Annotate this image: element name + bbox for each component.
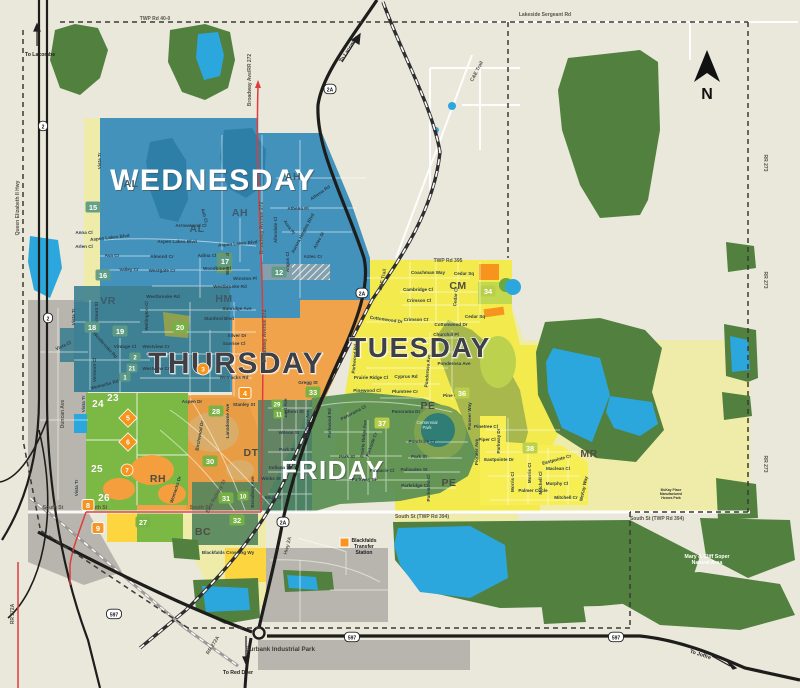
badge-number: 28 [212,407,220,416]
street-label: Stanley St [233,402,256,407]
street-label: Almond Cr [150,254,174,259]
zone-badge-32: 32 [230,515,245,526]
street-label: Broadway Ave [250,476,255,508]
highway-shield-2: 2 [39,121,48,131]
street-label: Crimson Cl [407,298,432,303]
badge-number: 37 [378,419,386,428]
zone-badge-37: 37 [375,418,390,429]
badge-number: 18 [88,323,96,332]
street-label: Highway Ave [305,409,310,438]
street-label: Winks St [261,476,281,481]
zone-badge-17: 17 [218,256,233,267]
street-label: Ponderosa Ave [437,361,471,366]
map-canvas: N WEDNESDAYTHURSDAYTUESDAYFRIDAY AHAHALA… [0,0,800,688]
street-label: Ava Cr [105,253,120,258]
street-label: Aspen Dr [182,399,203,404]
street-label: Aspen Lakes Blvd [157,239,197,244]
badge-number: 10 [240,494,247,500]
road-label: TWP Rd 395 [434,258,463,264]
zone-badge-8: 8 [82,500,94,511]
street-label: Stanford Blvd [204,316,234,321]
badge-number: 8 [86,501,90,510]
street-label: Westbrooke Rd [213,284,247,289]
road-label: Lakeside Sergeant Rd [519,12,571,18]
street-label: Valley Cr [119,267,139,272]
badge-number: 17 [221,257,229,266]
street-label: Cedar Sq [454,271,474,276]
street-label: Crimson Ct [404,317,429,322]
street-label: Vista Tr [71,309,76,326]
zone-badge-18: 18 [85,322,100,333]
poi-label: Burbank Industrial Park [245,646,315,653]
street-label: Womacks Rd [220,375,249,380]
road-label: RR 273 [762,456,768,473]
road-label: RR 273 [762,155,768,172]
street-label: Gregg St [298,380,318,385]
zone-badge-21: 21 [127,364,138,373]
street-label: Park St [279,447,295,452]
yellow-block [107,512,137,542]
street-label: Pioneer Way [467,402,472,430]
street-label: Allendale Cl [273,217,278,243]
district-label: AH [285,171,301,183]
road-label: Queen Elizabeth II Hwy [15,180,21,235]
compass-label: N [701,86,713,103]
street-label: Winston Pl [233,276,257,281]
zone-badge-29: 29 [272,400,283,409]
district-label: BC [195,526,211,538]
street-label: Vista Tr [74,480,79,497]
zone-badge-20: 20 [173,322,188,333]
badge-number: 9 [96,524,100,533]
street-label: Wellington Cl [144,301,149,330]
shield-number: 597 [110,612,119,618]
badge-number: 31 [222,494,230,503]
street-label: Morris Cl [510,472,515,492]
badge-number: 15 [89,203,97,212]
zone-badge-2: 2 [130,353,141,362]
badge-number: 38 [526,444,534,453]
street-label: Murphy Cl [546,481,568,486]
badge-number: 12 [275,268,283,277]
badge-number: 27 [139,518,147,527]
highway-shield-597: 597 [345,632,360,642]
highway-shield-2A: 2A [356,288,368,298]
district-label: AL [124,178,139,190]
zone-badge-1: 1 [120,373,131,382]
badge-number: 20 [176,323,184,332]
blackfalds-collection-zone-map: N WEDNESDAYTHURSDAYTUESDAYFRIDAY AHAHALA… [0,0,800,688]
zone-badge-16: 16 [96,270,111,281]
street-label: Athena Pl [287,206,308,211]
street-label: Vista Tr [97,153,102,170]
street-label: Parkridge Cr [401,483,429,488]
district-label: AH [232,207,248,219]
badge-number: 26 [98,493,110,504]
street-label: Pioneer Ave [474,438,479,465]
street-label: Westview Cr [142,366,169,371]
badge-number: 21 [129,366,136,372]
street-label: Pondside Cr [408,439,435,444]
street-label: Pinewood Cl [353,388,381,393]
roundabout [254,628,265,639]
street-label: Cottonwood Dr [434,322,467,327]
zone-badge-12: 12 [272,267,287,278]
badge-number: 23 [107,393,119,404]
zone-badge-34: 34 [481,286,496,297]
street-label: Mitchell Cr [554,495,578,500]
shield-number: 2 [47,316,50,322]
badge-number: 29 [274,402,281,408]
district-label: PE [420,400,435,412]
badge-number: 33 [309,388,317,397]
badge-number: 19 [116,327,124,336]
badge-number: 34 [484,287,493,296]
zone-badge-27: 27 [136,517,151,528]
zone-badge-4: 4 [239,388,251,399]
poi-label: McKay PlaceManufacturedHomes Park [660,488,682,500]
road-label: RR 272A [10,603,16,624]
zone-badge-30: 30 [203,456,218,467]
annex-hatched [292,264,330,280]
street-label: Churchill Pl [433,332,459,337]
district-label: RH [150,473,166,485]
street-label: Vista Tr [81,396,86,413]
zone-badge-28: 28 [209,406,224,417]
street-label: Park St [339,454,355,459]
street-label: Eastpointe Dr [484,457,514,462]
zone-badge-25: 25 [91,464,103,475]
orange-block [479,264,499,280]
highway-shield-597: 597 [609,632,624,642]
street-label: Park St [411,454,427,459]
zone-badge-33: 33 [306,387,321,398]
badge-number: 24 [92,399,104,410]
street-label: Lansdowne Ave [225,403,230,438]
day-zone-label: TUESDAY [349,332,491,363]
road-label: South St [43,505,64,511]
direction-label: To Red Deer [223,670,253,676]
zone-badge-11: 11 [274,410,285,419]
street-label: Parkway Cl [352,477,377,482]
street-label: Vermont Cl [92,358,97,382]
street-label: Cyprus Rd [394,374,417,379]
zone-badge-26: 26 [98,493,110,504]
road-label: Broadway Avenue 272 [259,201,265,254]
street-label: Coachman Way [411,270,445,275]
street-label: Parkmont Cl [426,474,431,501]
zone-badge-7: 7 [121,464,133,476]
street-label: Arlen Cl [75,244,93,249]
zone-badge-23: 23 [107,393,119,404]
street-label: Westbrooke Rd [146,294,180,299]
street-label: Arrowwood Cl [175,223,206,228]
district-label: MR [580,448,597,460]
street-label: Maclean Cl [546,466,570,471]
badge-number: 11 [276,412,283,418]
street-label: Palmer Circle [518,488,548,493]
street-label: Pinnacle Cl [370,468,395,473]
badge-number: 16 [99,271,107,280]
badge-number: 25 [91,464,103,475]
road-label: RR 273 [762,272,768,289]
road-label: South St (TWP Rd 394) [395,514,449,520]
street-label: Palisades St [400,467,428,472]
shield-number: 2A [280,520,287,526]
street-label: Sunrise Cl [223,341,246,346]
road-label: Broadway Avenue 272 [262,309,268,362]
street-label: Prairie Ridge Cl [354,375,388,380]
street-label: Cedar Sq [465,314,485,319]
shield-number: 2 [42,124,45,130]
road-label: Duncan Ave [60,400,66,429]
street-label: Blackfalds Crossing Wy [202,550,255,555]
badge-number: 32 [233,516,241,525]
district-label: VR [100,295,116,307]
street-label: Westgate Cr [149,268,176,273]
district-label: DT [244,447,259,459]
badge-number: 7 [125,467,129,474]
shield-number: 597 [612,635,621,641]
street-label: Parkwood Rd [327,408,332,438]
road-label: South St (TWP Rd 394) [630,516,684,522]
transfer-station-icon [340,538,349,547]
street-label: Adina Cl [198,253,217,258]
shield-number: 2A [327,87,334,93]
road-label: TWP Rd 40-0 [140,16,171,22]
highway-shield-597: 597 [107,609,122,619]
street-label: Morris Ct [527,462,532,483]
badge-number: 3 [201,366,205,373]
zone-badge-38: 38 [523,443,538,454]
street-label: Plumtree Cr [392,389,418,394]
street-label: Indiana St [269,465,291,470]
zone-badge-9: 9 [92,523,104,534]
highway-shield-2: 2 [44,313,53,323]
district-label: PE [441,477,456,489]
street-label: Cambridge Cl [403,287,433,292]
street-label: Pinetree Cl [474,424,498,429]
street-label: Shull St [264,495,282,500]
zone-badge-15: 15 [86,202,101,213]
zone-badge-19: 19 [113,326,128,337]
highway-shield-2A: 2A [324,84,336,94]
direction-label: To Lacombe [25,52,55,58]
street-label: Westview Cr [142,344,169,349]
street-label: Parkway Dr [496,428,501,453]
zone-badge-36: 36 [455,388,470,399]
street-label: Vintage Cl [114,344,136,349]
road-label: Broadway Ave/RR 272 [247,54,253,107]
shield-number: 2A [359,291,366,297]
district-label: HM [215,293,232,305]
street-label: Wilson St [279,430,300,435]
zone-badge-10: 10 [238,492,249,501]
street-label: Sunridge Ave [222,306,252,311]
street-label: Panorama Dr [392,409,421,414]
badge-number: 6 [126,440,130,447]
badge-number: 30 [206,457,214,466]
street-label: Aztec Cr [304,254,323,259]
zone-badge-3: 3 [197,363,209,375]
street-label: Anna Cl [75,230,92,235]
zone-badge-24: 24 [92,399,104,410]
shield-number: 597 [348,635,357,641]
highway-shield-2A: 2A [277,517,289,527]
badge-number: 5 [126,416,130,423]
zone-badge-31: 31 [219,493,234,504]
street-label: Piper Cl [478,437,495,442]
street-label: Silver Dr [228,333,247,338]
badge-number: 36 [458,389,466,398]
